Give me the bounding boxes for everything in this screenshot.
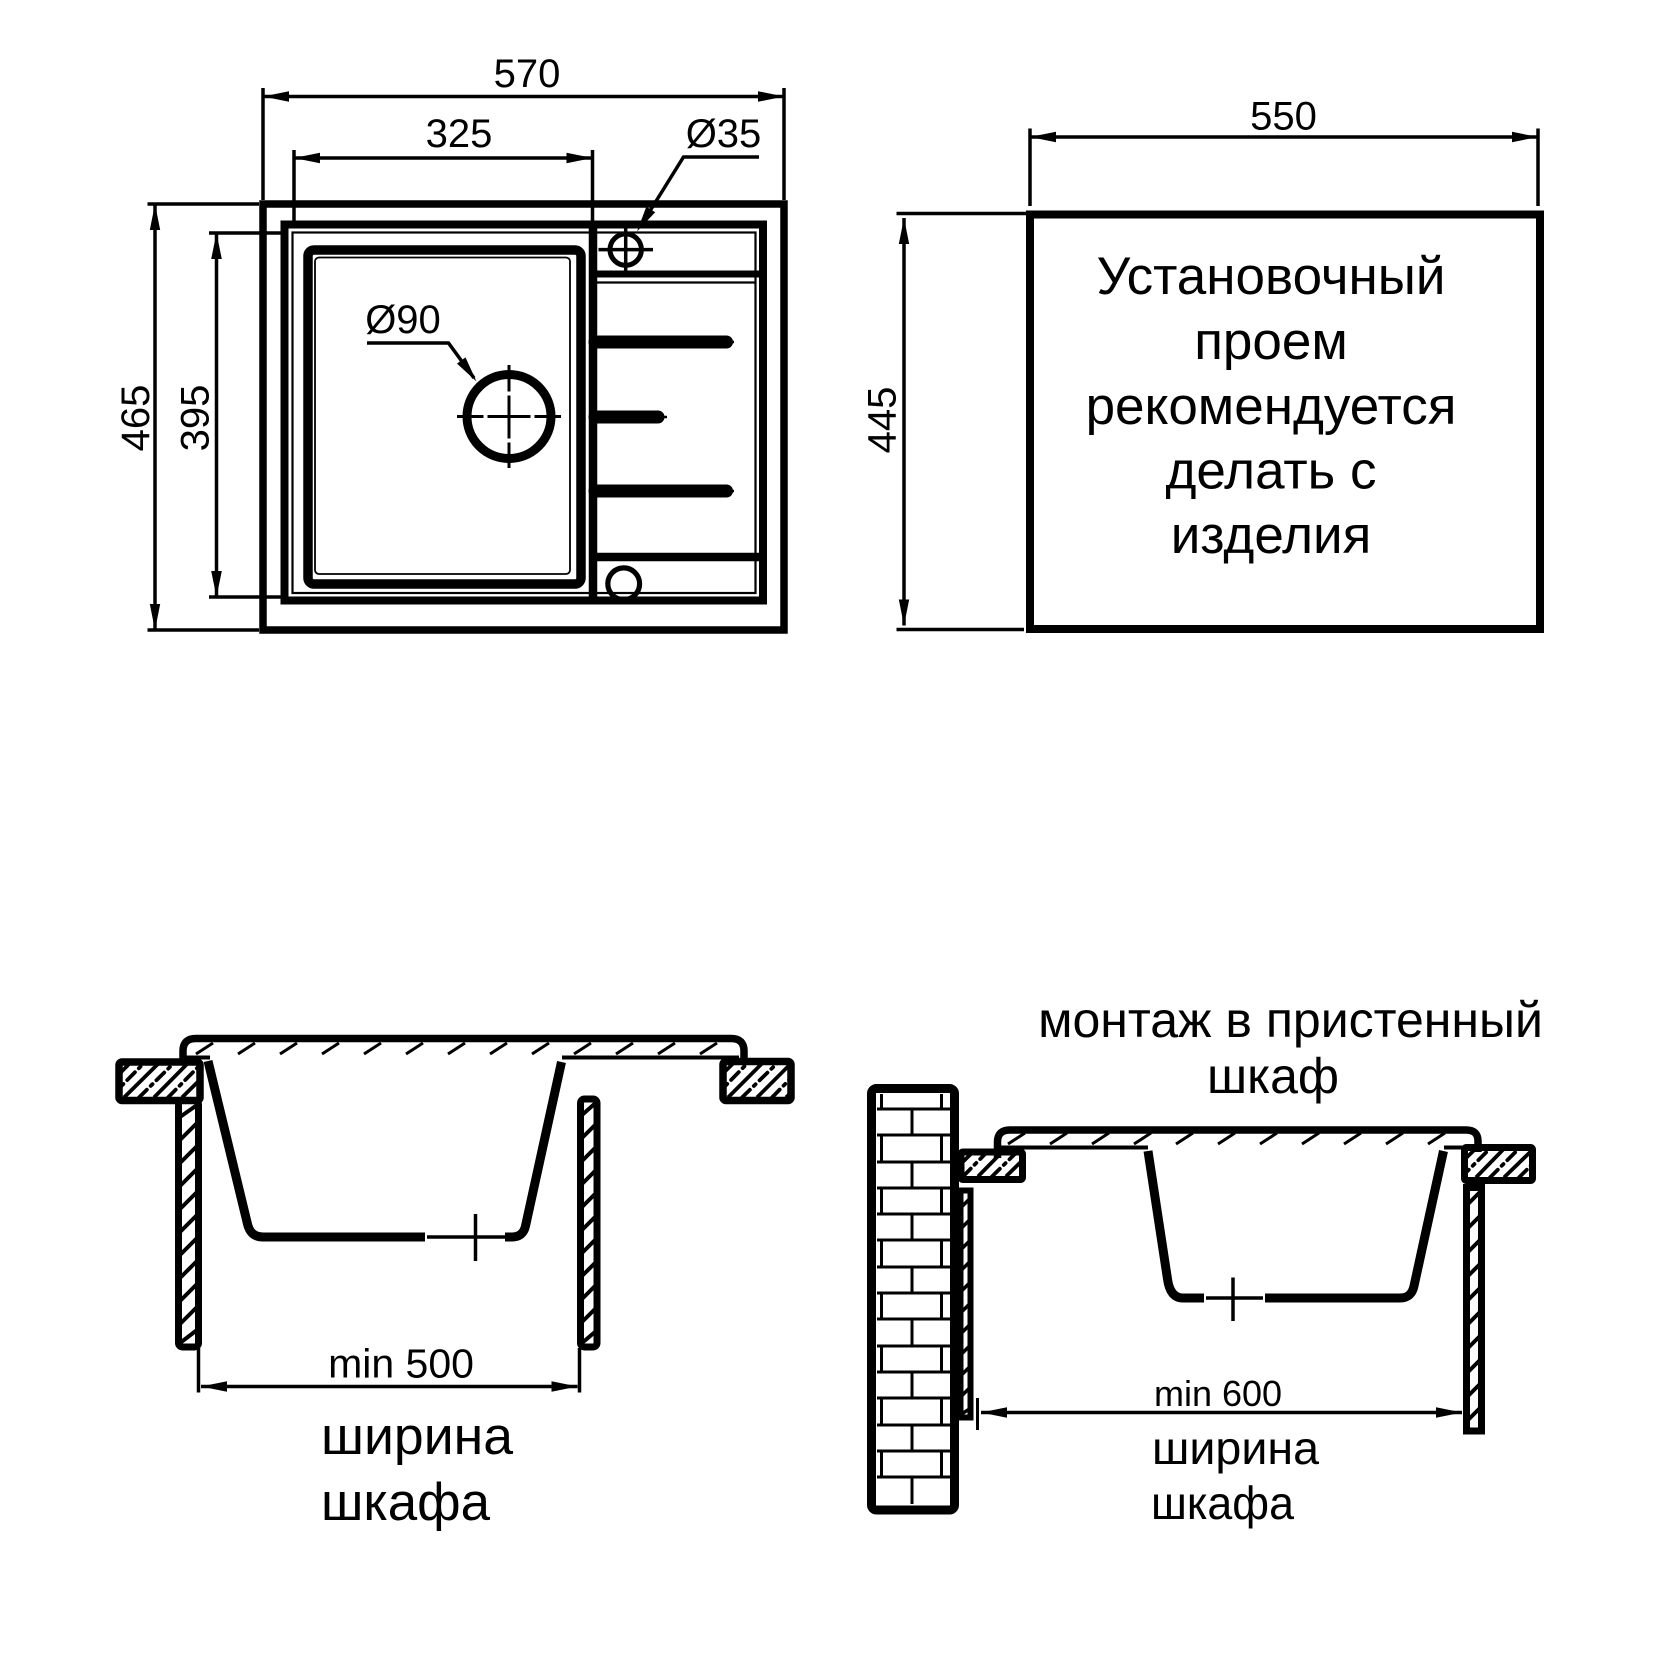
svg-text:рекомендуется: рекомендуется [1086, 377, 1457, 436]
svg-text:Установочный: Установочный [1097, 247, 1446, 306]
svg-text:465: 465 [114, 385, 158, 452]
svg-text:570: 570 [494, 52, 561, 96]
svg-text:монтаж в пристенный: монтаж в пристенный [1038, 992, 1543, 1048]
svg-text:шкафа: шкафа [1151, 1477, 1294, 1529]
svg-text:шкафа: шкафа [321, 1473, 491, 1532]
svg-text:min 600: min 600 [1154, 1373, 1282, 1414]
svg-text:550: 550 [1250, 95, 1317, 139]
svg-text:делать с: делать с [1166, 442, 1377, 501]
svg-text:проем: проем [1194, 312, 1348, 371]
svg-text:325: 325 [426, 112, 493, 156]
svg-text:ширина: ширина [1152, 1422, 1319, 1474]
svg-text:изделия: изделия [1171, 506, 1372, 565]
svg-text:395: 395 [174, 385, 218, 452]
svg-text:Ø90: Ø90 [365, 298, 441, 342]
svg-text:min 500: min 500 [328, 1341, 474, 1387]
svg-text:445: 445 [861, 387, 905, 454]
svg-text:ширина: ширина [321, 1407, 514, 1466]
svg-text:шкаф: шкаф [1207, 1048, 1339, 1104]
svg-text:Ø35: Ø35 [686, 112, 762, 156]
